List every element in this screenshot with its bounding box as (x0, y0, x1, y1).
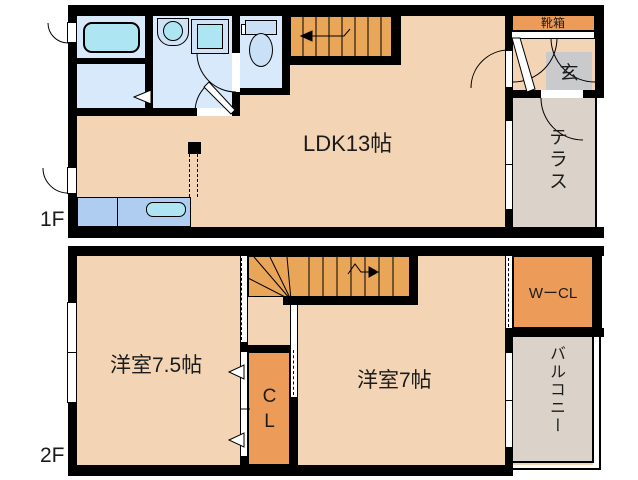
bathtub (83, 22, 140, 53)
toilet-bowl (249, 33, 273, 67)
wall (410, 246, 418, 305)
ldk-label: LDK13帖 (303, 126, 392, 158)
wall (505, 337, 513, 352)
dashed-line (293, 350, 294, 395)
wall (240, 88, 282, 95)
door-swing-arc (48, 23, 68, 43)
balcony-label: バルコニー (543, 345, 567, 435)
wall (68, 246, 604, 256)
floorplan-canvas: 靴箱 WーCL (0, 0, 638, 480)
walkin-closet-opening (505, 256, 513, 328)
washing-machine-tub (197, 24, 223, 49)
kitchen-sink (146, 202, 186, 217)
room7-label: 洋室7帖 (357, 364, 432, 394)
shoebox-label: 靴箱 (541, 14, 565, 31)
door-swing-arc (43, 168, 68, 193)
wall (593, 246, 602, 337)
wall (391, 16, 401, 65)
sliding-door-dashed (241, 258, 242, 340)
genkan-label: 玄 (546, 56, 592, 86)
bath-window (67, 22, 77, 43)
kitchen-partition-dashed (189, 154, 198, 197)
washroom-doorway (197, 108, 232, 116)
wall (68, 5, 604, 16)
wall (283, 297, 410, 305)
genkan-ldk-door (505, 50, 513, 88)
wall (282, 57, 401, 65)
wall (68, 227, 604, 238)
wall (595, 5, 604, 98)
window-tick (505, 400, 513, 401)
room-changing (77, 64, 145, 108)
wall (290, 397, 298, 465)
wall (505, 328, 604, 337)
dashed-line (508, 258, 509, 327)
window-tick (68, 352, 76, 353)
room7-sliding-door (290, 305, 298, 348)
toilet-handle (241, 24, 246, 35)
wall (505, 448, 513, 465)
wall (68, 465, 513, 476)
walkin-closet: WーCL (513, 256, 593, 328)
shoebox-cabinet: 靴箱 (511, 14, 595, 31)
front-door (511, 31, 595, 39)
floor-label-2f: 2F (40, 444, 65, 468)
kitchen-partition-stub (188, 142, 201, 154)
walkin-closet-label: WーCL (529, 282, 577, 303)
room7-door-dashed-strip (290, 348, 298, 397)
wall (240, 456, 248, 465)
terrace-label: テラス (543, 127, 570, 193)
toilet-doorway (232, 53, 240, 92)
floor-label-1f: 1F (40, 208, 65, 232)
wall (77, 58, 145, 64)
terrace-doorway (541, 90, 583, 98)
washbasin-bowl (163, 21, 183, 41)
room75-label: 洋室7.5帖 (110, 349, 202, 379)
wall (77, 108, 153, 116)
wall (145, 16, 153, 108)
staircase-1f (290, 16, 392, 57)
kitchen-counter-divider (117, 197, 118, 227)
wall (282, 16, 290, 95)
ldk-side-door (67, 167, 77, 194)
window-tick (505, 164, 513, 165)
staircase-2f (248, 256, 410, 297)
closet-door (240, 352, 248, 456)
wall (153, 108, 197, 116)
closet-label: CL (258, 386, 280, 436)
ldk-terrace-window (505, 120, 513, 210)
